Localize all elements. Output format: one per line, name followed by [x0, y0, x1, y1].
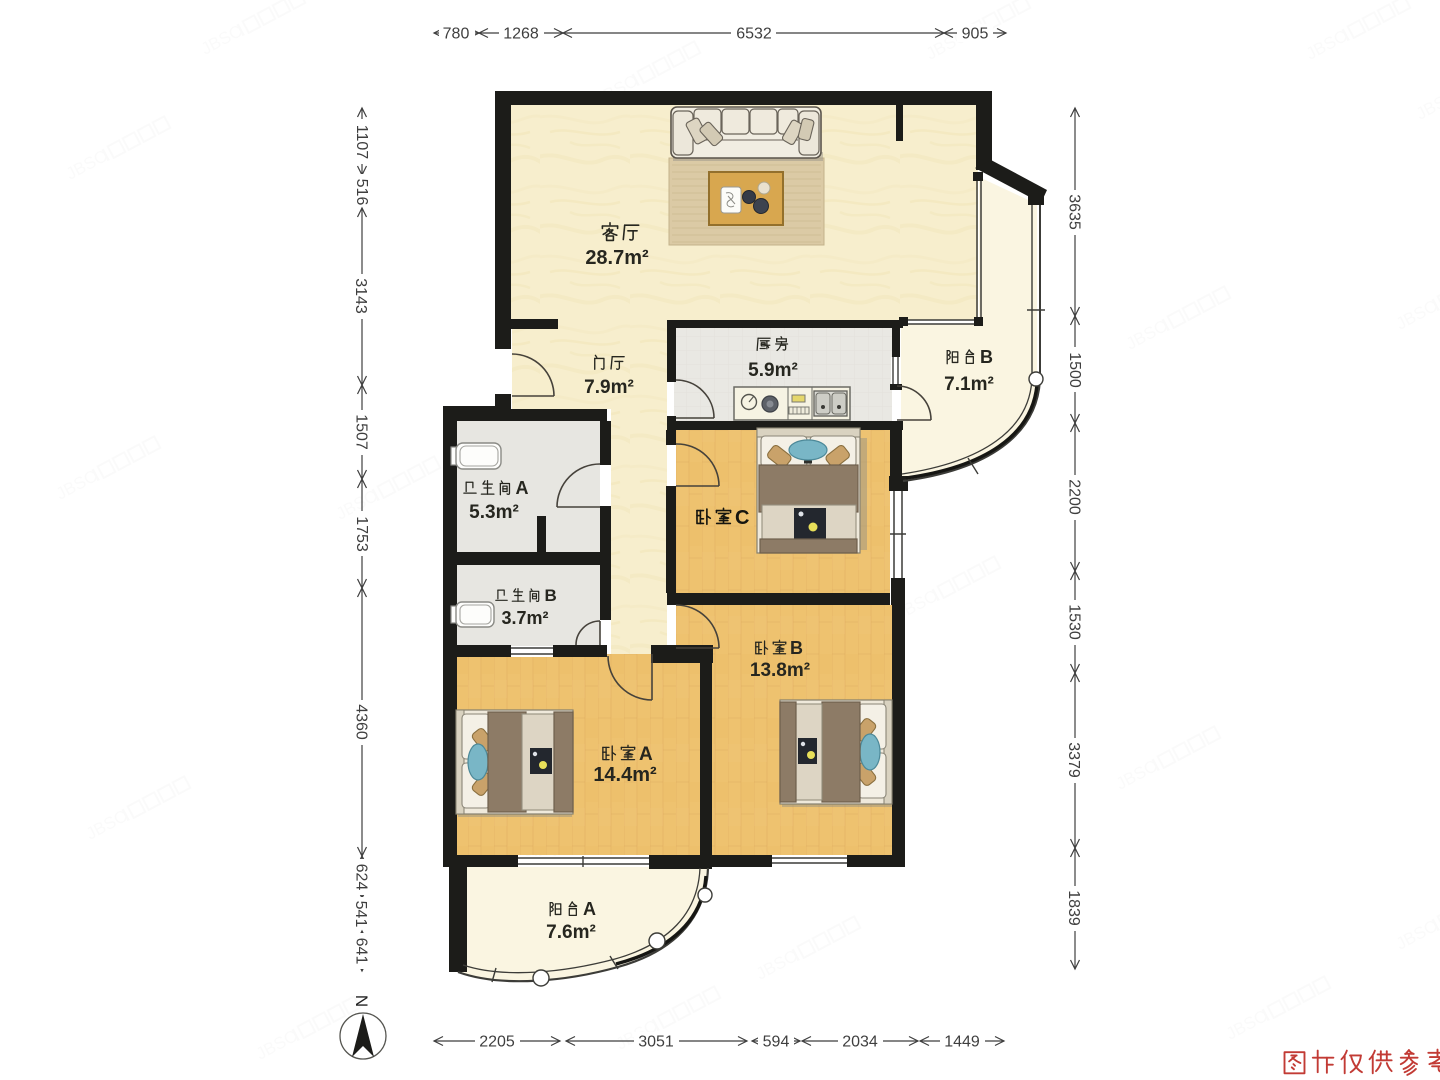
- svg-text:7.6m²: 7.6m²: [546, 922, 596, 943]
- svg-text:1107: 1107: [353, 125, 370, 160]
- svg-text:1530: 1530: [1066, 604, 1083, 640]
- svg-text:3.7m²: 3.7m²: [501, 608, 548, 628]
- svg-text:B: B: [790, 638, 803, 658]
- svg-text:1839: 1839: [1065, 890, 1082, 926]
- svg-text:B: B: [980, 347, 993, 367]
- svg-text:3635: 3635: [1066, 194, 1083, 230]
- svg-text:1753: 1753: [353, 516, 370, 552]
- svg-text:2205: 2205: [479, 1034, 515, 1051]
- svg-text:624: 624: [353, 864, 370, 891]
- svg-text:5.3m²: 5.3m²: [469, 502, 519, 523]
- svg-text:594: 594: [763, 1034, 790, 1051]
- svg-text:1507: 1507: [353, 414, 370, 450]
- svg-text:1449: 1449: [944, 1034, 980, 1051]
- svg-text:6532: 6532: [736, 26, 772, 43]
- svg-text:905: 905: [962, 26, 989, 43]
- svg-text:7.9m²: 7.9m²: [584, 377, 634, 398]
- svg-text:4360: 4360: [353, 704, 370, 740]
- svg-text:1500: 1500: [1066, 352, 1083, 388]
- svg-text:2200: 2200: [1066, 479, 1083, 515]
- svg-text:A: A: [639, 744, 653, 765]
- svg-text:A: A: [583, 899, 596, 919]
- svg-text:7.1m²: 7.1m²: [944, 374, 994, 395]
- svg-text:28.7m²: 28.7m²: [585, 247, 649, 269]
- svg-text:A: A: [516, 478, 529, 498]
- svg-text:541: 541: [352, 901, 369, 928]
- svg-text:C: C: [735, 507, 749, 529]
- svg-text:1268: 1268: [503, 26, 539, 43]
- svg-text:2034: 2034: [842, 1034, 878, 1051]
- svg-text:3143: 3143: [352, 278, 369, 314]
- svg-text:641: 641: [353, 938, 370, 965]
- svg-text:3379: 3379: [1065, 742, 1082, 778]
- svg-text:5.9m²: 5.9m²: [748, 360, 798, 381]
- svg-text:3051: 3051: [638, 1034, 674, 1051]
- svg-text:14.4m²: 14.4m²: [593, 764, 657, 786]
- svg-text:780: 780: [443, 26, 470, 43]
- svg-text:516: 516: [353, 179, 370, 206]
- svg-text:13.8m²: 13.8m²: [750, 660, 810, 681]
- svg-text:B: B: [545, 586, 557, 605]
- svg-text:N: N: [352, 995, 371, 1007]
